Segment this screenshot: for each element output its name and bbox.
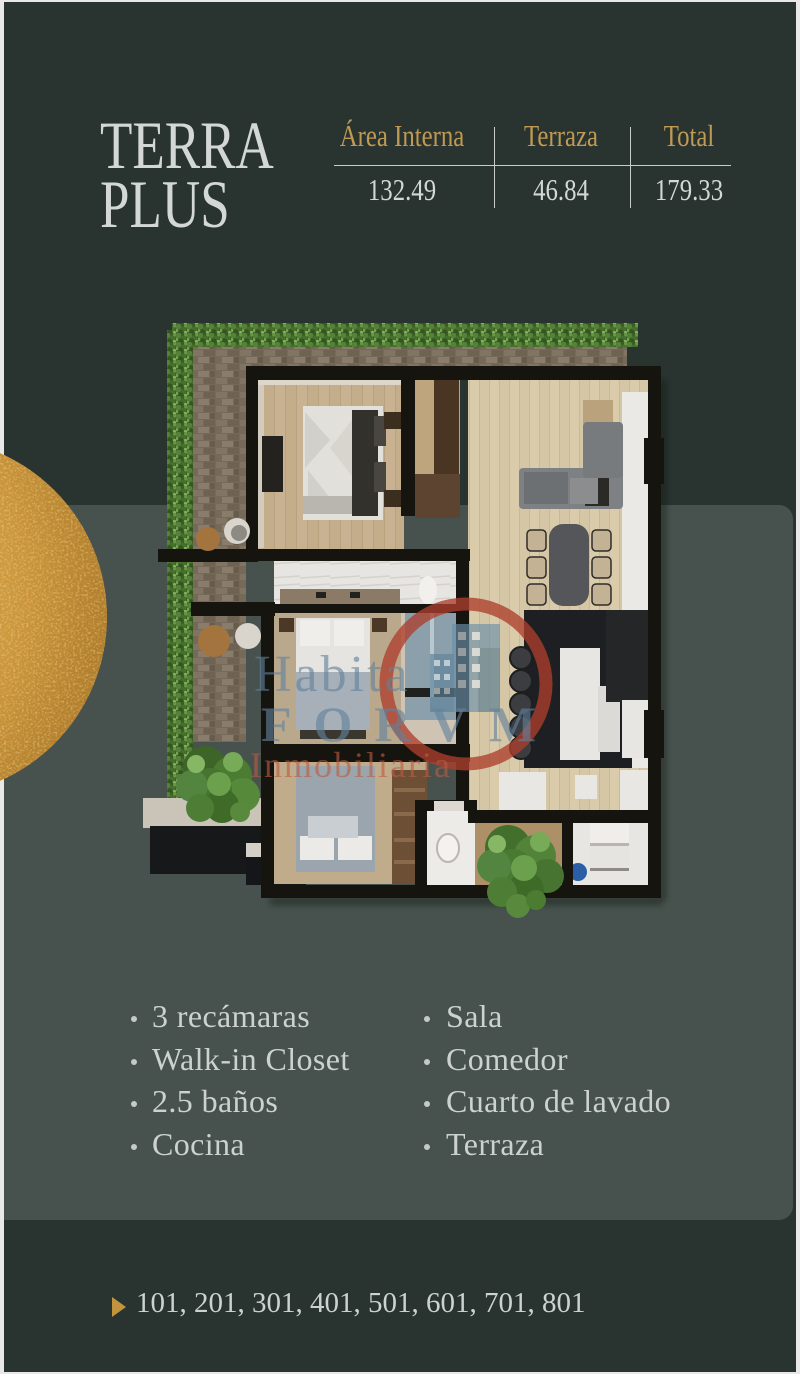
svg-text:Inmobiliaria: Inmobiliaria	[250, 745, 452, 785]
svg-text:FORVM: FORVM	[261, 696, 558, 752]
svg-text:Habita: Habita	[254, 646, 411, 703]
